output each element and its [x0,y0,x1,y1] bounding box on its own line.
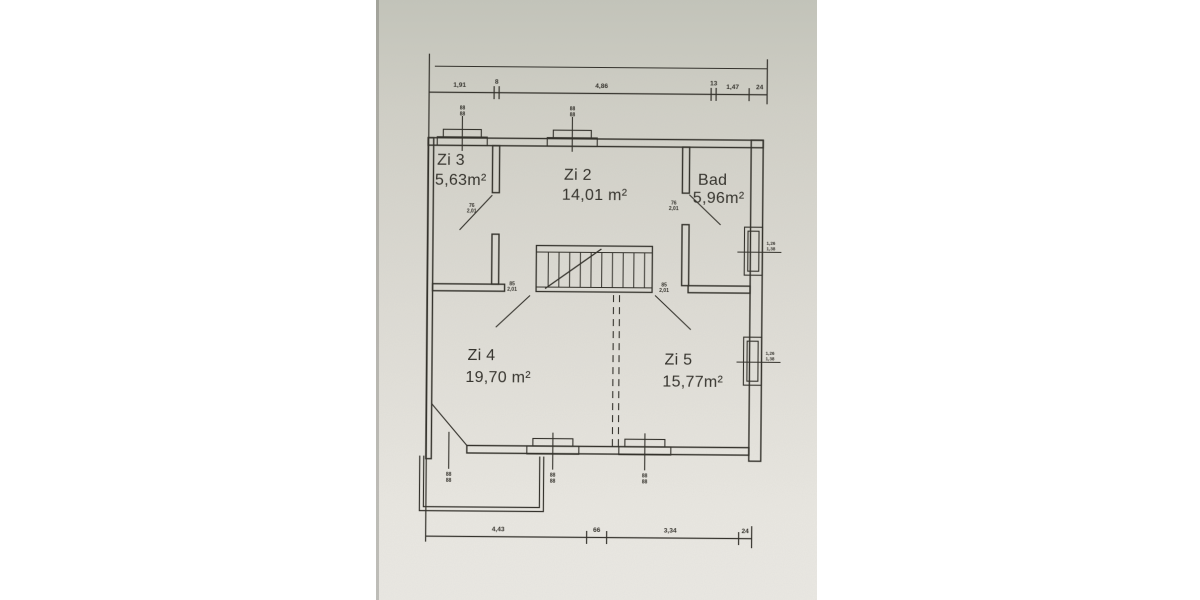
room-zi4-area: 19,70 m² [465,369,531,387]
window-right2-l2: 1,38 [766,356,775,361]
room-bad-name: Bad [698,172,728,189]
floor-plan-canvas: 1,91 8 4,86 13 1,47 24 [0,0,1200,600]
door-zi4-height: 2,01 [507,287,517,293]
dim-top-6: 24 [756,84,764,91]
room-zi2-area: 14,01 m² [562,187,628,205]
window-bottom3-l2: 88 [642,479,648,485]
dim-top-2: 8 [495,79,499,86]
window-bottom2-l2: 88 [550,479,556,485]
window-top2-l2: 88 [570,112,576,118]
dim-top-5: 1,47 [726,84,739,91]
room-zi3-name: Zi 3 [437,152,465,169]
dim-top-3: 4,86 [595,83,608,90]
room-bad-area: 5,96m² [693,190,745,207]
room-zi5-name: Zi 5 [664,352,692,369]
scanned-floor-plan-page: 1,91 8 4,86 13 1,47 24 [0,0,1200,600]
door-bad-height: 2,01 [669,206,679,212]
room-zi2-name: Zi 2 [564,167,592,184]
window-bottom1-l2: 88 [446,478,452,484]
dim-bottom-4: 24 [742,528,750,535]
dim-bottom-1: 4,43 [492,526,505,533]
paper-grain [376,0,817,600]
room-zi4-name: Zi 4 [467,347,495,364]
window-right1-l2: 1,38 [766,246,775,251]
door-zi5-height: 2,01 [659,288,669,294]
room-zi5-area: 15,77m² [662,373,723,390]
dim-top-1: 1,91 [453,82,466,89]
dim-bottom-2: 66 [593,527,601,534]
door-zi3-height: 2,01 [467,208,477,214]
dim-top-4: 13 [710,80,718,87]
window-top1-l2: 88 [460,111,466,117]
room-zi3-area: 5,63m² [435,172,487,189]
window-right1-l1: 1,26 [766,241,775,246]
dim-bottom-3: 3,34 [664,528,677,535]
window-right2-l1: 1,26 [766,351,775,356]
